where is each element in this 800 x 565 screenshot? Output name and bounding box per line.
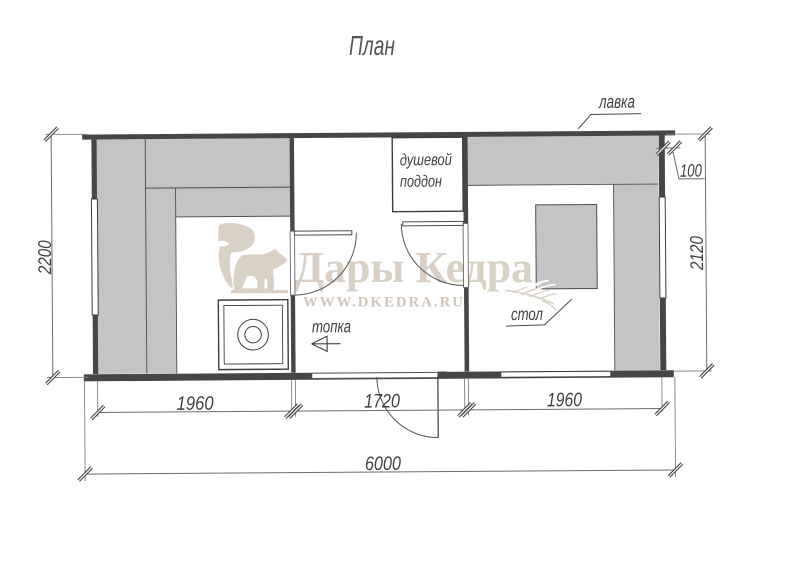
svg-text:стол: стол: [511, 304, 543, 324]
svg-text:6000: 6000: [365, 453, 401, 475]
svg-text:100: 100: [680, 161, 702, 181]
svg-text:2120: 2120: [686, 235, 707, 271]
svg-text:топка: топка: [312, 316, 351, 336]
svg-text:1960: 1960: [547, 389, 582, 411]
svg-text:1720: 1720: [364, 390, 400, 412]
svg-text:1960: 1960: [176, 393, 213, 415]
svg-text:WWW.DKEDRA.RU: WWW.DKEDRA.RU: [303, 295, 465, 311]
svg-text:2200: 2200: [34, 240, 55, 276]
svg-text:душевой: душевой: [400, 151, 452, 169]
svg-text:План: План: [349, 30, 395, 61]
svg-text:лавка: лавка: [598, 91, 635, 112]
svg-text:поддон: поддон: [400, 173, 442, 191]
